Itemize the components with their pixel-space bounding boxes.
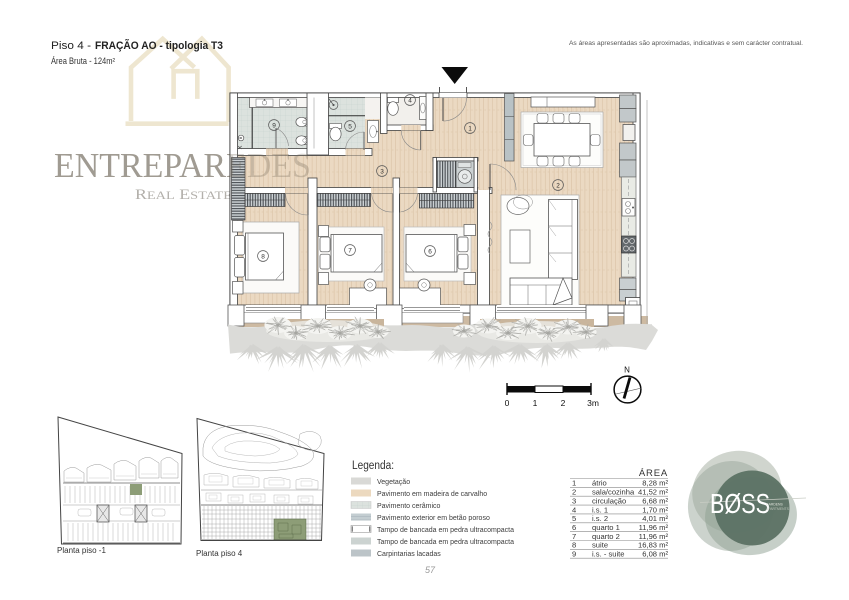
svg-text:N: N (624, 366, 630, 375)
svg-text:57: 57 (425, 565, 436, 575)
svg-text:ÁREA: ÁREA (639, 468, 668, 479)
svg-text:BØSS: BØSS (710, 488, 770, 519)
svg-text:Vegetação: Vegetação (377, 479, 410, 486)
svg-text:circulação: circulação (592, 496, 626, 505)
svg-text:GARDENS: GARDENS (766, 503, 784, 507)
svg-text:1: 1 (533, 398, 538, 408)
svg-text:3: 3 (572, 496, 576, 505)
svg-text:6: 6 (428, 248, 432, 255)
svg-text:ENTREPAREDES: ENTREPAREDES (54, 146, 311, 185)
svg-text:Piso 4 -: Piso 4 - (51, 40, 91, 52)
svg-text:6,08 m²: 6,08 m² (642, 550, 668, 559)
svg-text:Área Bruta - 124m²: Área Bruta - 124m² (51, 56, 115, 66)
svg-text:Tampo de bancada em pedra ultr: Tampo de bancada em pedra ultracompacta (377, 527, 514, 534)
svg-text:3: 3 (380, 168, 384, 175)
svg-text:16,83 m²: 16,83 m² (638, 541, 668, 550)
svg-text:Pavimento em madeira de carval: Pavimento em madeira de carvalho (377, 491, 487, 498)
svg-text:1: 1 (572, 479, 576, 488)
svg-text:8: 8 (572, 541, 576, 550)
svg-text:Planta piso -1: Planta piso -1 (57, 546, 106, 555)
svg-text:suite: suite (592, 541, 608, 550)
svg-text:8,28 m²: 8,28 m² (642, 479, 668, 488)
svg-text:1,70 m²: 1,70 m² (642, 505, 668, 514)
svg-text:2: 2 (572, 488, 576, 497)
svg-text:i.s. 2: i.s. 2 (592, 514, 608, 523)
svg-text:4,01 m²: 4,01 m² (642, 514, 668, 523)
svg-text:7: 7 (348, 247, 352, 254)
svg-text:átrio: átrio (592, 479, 607, 488)
svg-text:41,52 m²: 41,52 m² (638, 488, 668, 497)
svg-text:Pavimento cerâmico: Pavimento cerâmico (377, 503, 441, 510)
svg-text:sala/cozinha: sala/cozinha (592, 488, 635, 497)
svg-text:9: 9 (572, 550, 576, 559)
svg-text:APARTMENTS: APARTMENTS (766, 507, 790, 511)
svg-text:FRAÇÃO AO - tipologia T3: FRAÇÃO AO - tipologia T3 (95, 39, 223, 52)
svg-text:4: 4 (408, 97, 412, 104)
svg-text:3m: 3m (587, 398, 599, 408)
svg-text:0: 0 (505, 398, 510, 408)
svg-text:i.s. 1: i.s. 1 (592, 505, 608, 514)
svg-text:quarto 2: quarto 2 (592, 532, 620, 541)
svg-text:quarto 1: quarto 1 (592, 523, 620, 532)
svg-text:11,96 m²: 11,96 m² (639, 523, 669, 532)
svg-text:2: 2 (556, 182, 560, 189)
svg-text:i.s. - suite: i.s. - suite (592, 550, 625, 559)
svg-text:REAL ESTATE: REAL ESTATE (135, 187, 232, 203)
svg-text:Pavimento exterior em betão po: Pavimento exterior em betão poroso (377, 515, 490, 522)
svg-text:5: 5 (572, 514, 576, 523)
svg-text:Planta piso 4: Planta piso 4 (196, 549, 243, 558)
svg-text:2: 2 (561, 398, 566, 408)
svg-text:As áreas apresentadas são apro: As áreas apresentadas são aproximadas, i… (569, 40, 803, 47)
svg-text:9: 9 (272, 122, 276, 129)
svg-text:5: 5 (348, 123, 352, 130)
svg-text:1: 1 (468, 125, 472, 132)
svg-text:6: 6 (572, 523, 576, 532)
svg-text:7: 7 (572, 532, 576, 541)
svg-text:4: 4 (572, 505, 576, 514)
svg-text:11,96 m²: 11,96 m² (639, 532, 669, 541)
svg-text:Carpintarias lacadas: Carpintarias lacadas (377, 551, 441, 558)
svg-text:6,68 m²: 6,68 m² (642, 496, 668, 505)
svg-text:8: 8 (261, 253, 265, 260)
svg-text:Tampo de bancada em pedra ultr: Tampo de bancada em pedra ultracompacta (377, 539, 514, 546)
svg-text:Legenda:: Legenda: (352, 460, 394, 472)
